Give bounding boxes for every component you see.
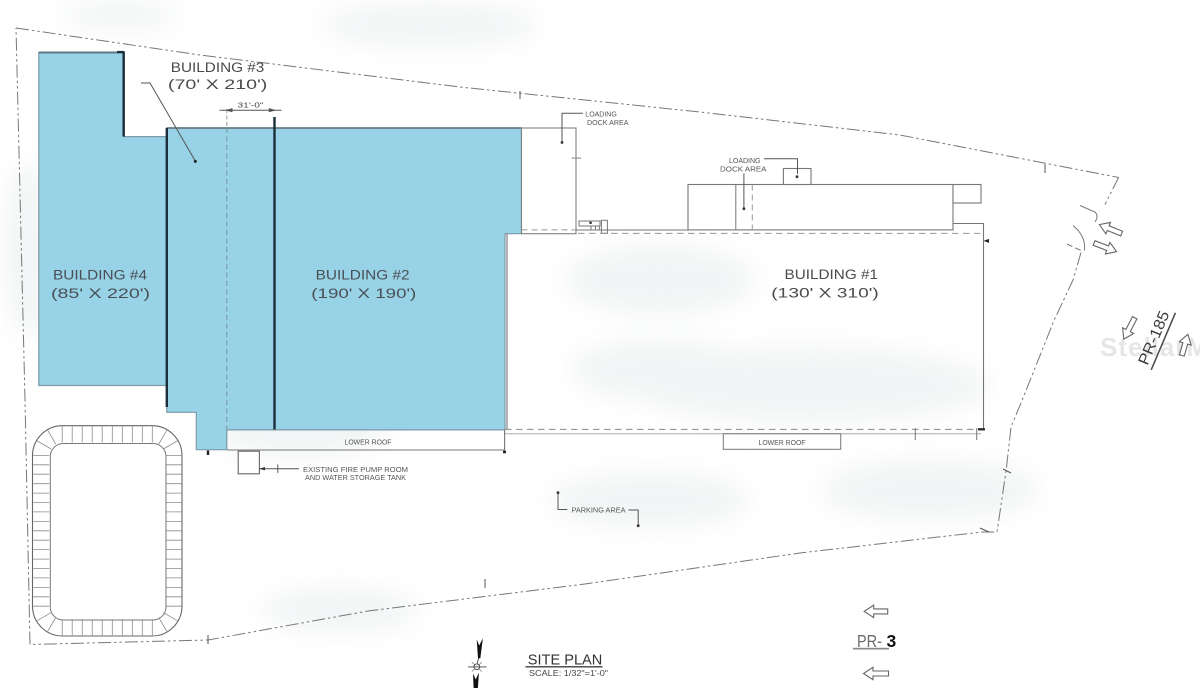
svg-text:BUILDING #1: BUILDING #1 bbox=[785, 267, 879, 282]
svg-text:(190' X 190'): (190' X 190') bbox=[311, 286, 416, 301]
svg-text:(70' X 210'): (70' X 210') bbox=[168, 77, 268, 92]
svg-text:BUILDING #4: BUILDING #4 bbox=[53, 268, 148, 283]
svg-text:(85' X 220'): (85' X 220') bbox=[51, 286, 150, 301]
svg-text:LOWER ROOF: LOWER ROOF bbox=[345, 437, 393, 446]
svg-text:31'-0": 31'-0" bbox=[238, 103, 265, 110]
svg-text:BUILDING #3: BUILDING #3 bbox=[171, 60, 264, 75]
svg-text:DOCK AREA: DOCK AREA bbox=[587, 118, 629, 127]
svg-text:BUILDING #2: BUILDING #2 bbox=[316, 268, 410, 283]
svg-text:SCALE: 1/32"=1'-0": SCALE: 1/32"=1'-0" bbox=[529, 669, 608, 678]
svg-text:(130' X 310'): (130' X 310') bbox=[771, 286, 879, 301]
svg-text:PARKING AREA: PARKING AREA bbox=[572, 506, 626, 515]
svg-text:DOCK AREA: DOCK AREA bbox=[720, 165, 767, 174]
svg-text:AND WATER STORAGE TANK: AND WATER STORAGE TANK bbox=[305, 473, 406, 482]
svg-text:LOWER ROOF: LOWER ROOF bbox=[759, 438, 807, 447]
